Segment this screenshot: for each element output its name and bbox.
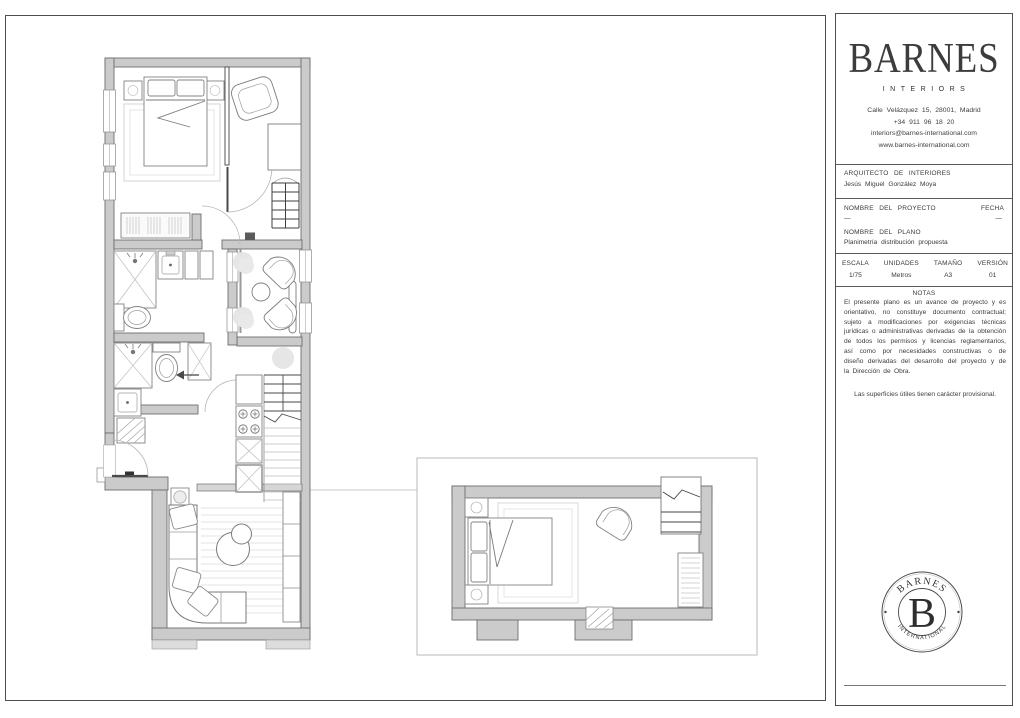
spec-escala: ESCALA 1/75 <box>842 260 869 279</box>
spec-version: VERSIÓN 01 <box>977 260 1008 279</box>
signature-line <box>844 685 1006 686</box>
address-line: www.barnes-international.com <box>836 140 1012 152</box>
nightstand <box>124 81 142 100</box>
bathroom-2 <box>114 343 237 443</box>
spec-tamano: TAMAÑO A3 <box>934 260 963 279</box>
living-room <box>112 440 300 623</box>
cabinet <box>185 251 198 279</box>
spec-label: ESCALA <box>842 260 869 267</box>
terrace-table <box>252 283 270 301</box>
spec-value: Metros <box>884 272 919 279</box>
armchair <box>229 74 280 122</box>
terrace-armchair <box>262 296 303 336</box>
entrance-door <box>112 440 148 476</box>
address-line: Calle Velázquez 15, 28001, Madrid <box>836 105 1012 117</box>
terrace <box>233 251 303 369</box>
sink <box>114 389 141 416</box>
sink <box>158 251 183 279</box>
oven <box>236 465 262 492</box>
divider <box>836 253 1012 254</box>
main-floor-plan <box>97 58 312 649</box>
radiator <box>678 553 703 607</box>
side-table <box>232 524 252 544</box>
spec-value: 01 <box>977 272 1008 279</box>
hatched-vent <box>586 607 613 629</box>
detail-stairs <box>661 477 701 534</box>
seal-dot <box>884 611 886 613</box>
shelving <box>283 492 300 622</box>
shower <box>114 343 152 388</box>
stove <box>236 406 262 437</box>
toilet <box>153 343 180 382</box>
project-value: — <box>844 215 851 222</box>
plant-table <box>171 488 189 506</box>
washing-machine <box>117 418 145 443</box>
spec-unidades: UNIDADES Metros <box>884 260 919 279</box>
divider <box>836 198 1012 199</box>
spec-value: A3 <box>934 272 963 279</box>
divider <box>836 286 1012 287</box>
plant <box>272 347 294 369</box>
divider <box>836 164 1012 165</box>
nightstand <box>465 585 488 604</box>
bathroom-1 <box>114 251 213 331</box>
date-value: — <box>995 215 1002 222</box>
door-swing-arc <box>228 167 273 212</box>
detail-bed <box>468 518 552 585</box>
date-label: FECHA <box>981 205 1004 212</box>
nightstand <box>206 81 224 100</box>
desk <box>268 124 301 170</box>
loft-ladder <box>272 178 299 228</box>
plan-name-label: NOMBRE DEL PLANO <box>844 229 921 236</box>
notes-footnote: Las superficies útiles tienen carácter p… <box>850 390 1000 400</box>
staircase <box>264 375 301 502</box>
seal-monogram: B <box>908 591 936 637</box>
nightstand <box>465 498 488 517</box>
spec-label: TAMAÑO <box>934 260 963 267</box>
shower <box>114 251 156 308</box>
spec-value: 1/75 <box>842 272 869 279</box>
door-swing-arc <box>205 380 237 412</box>
title-block-panel: BARNES INTERIORS Calle Velázquez 15, 280… <box>835 13 1013 706</box>
architect-name: Jesús Miguel González Moya <box>844 181 936 188</box>
counter <box>236 375 262 404</box>
architect-label: ARQUITECTO DE INTERIORES <box>844 170 951 177</box>
door-handle <box>125 472 134 476</box>
address-line: interiors@barnes-international.com <box>836 128 1012 140</box>
double-bed <box>144 77 207 166</box>
spec-label: UNIDADES <box>884 260 919 267</box>
vent <box>245 233 255 241</box>
project-label: NOMBRE DEL PROYECTO <box>844 205 936 212</box>
wardrobe <box>121 213 190 238</box>
brand-sublogo: INTERIORS <box>836 86 1012 93</box>
floor-plan-drawing <box>0 0 830 718</box>
spec-row: ESCALA 1/75 UNIDADES Metros TAMAÑO A3 VE… <box>842 260 1008 279</box>
brand-seal: BARNES INTERNATIONAL B <box>872 562 972 662</box>
kitchen <box>236 375 301 502</box>
brand-address: Calle Velázquez 15, 28001, Madrid +34 91… <box>836 105 1012 151</box>
plan-name-value: Planimetría distribución propuesta <box>844 239 948 246</box>
notes-heading: NOTAS <box>836 290 1012 297</box>
cabinet <box>200 251 213 279</box>
address-line: +34 911 96 18 20 <box>836 117 1012 129</box>
appliance <box>236 439 262 463</box>
door-swing-arc <box>112 440 148 476</box>
notes-body: El presente plano es un avance de proyec… <box>844 298 1006 376</box>
seal-dot <box>957 611 959 613</box>
detail-floor-plan <box>417 458 757 655</box>
partition-wall <box>225 67 229 165</box>
spec-label: VERSIÓN <box>977 260 1008 267</box>
brand-logo: BARNES <box>847 38 1002 80</box>
